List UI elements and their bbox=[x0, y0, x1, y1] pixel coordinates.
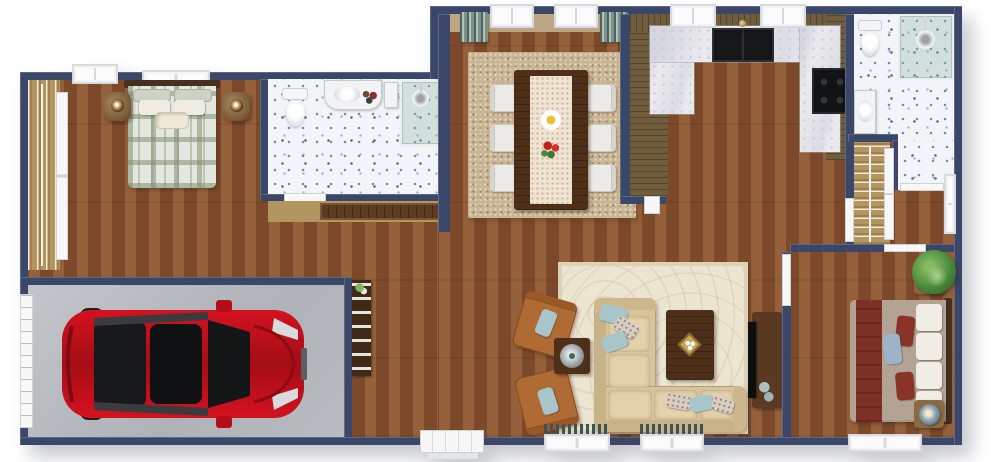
exterior-wall-step bbox=[430, 6, 438, 80]
bathroom2-sink bbox=[857, 100, 873, 122]
bed2-pillow-white-1 bbox=[916, 304, 942, 331]
tv-console-decor bbox=[758, 380, 776, 404]
garage-wall-top bbox=[20, 277, 352, 285]
toilet2-tank bbox=[858, 20, 882, 31]
dining-chair-right-3 bbox=[586, 164, 616, 192]
bed2-pillow-white-2 bbox=[916, 333, 942, 360]
front-door-step bbox=[428, 453, 478, 459]
dining-plate bbox=[541, 110, 561, 130]
bedroom2-door bbox=[782, 254, 791, 306]
bedroom2-hall-opening bbox=[884, 244, 926, 252]
shower2-head bbox=[916, 30, 935, 49]
bedroom2-plant bbox=[912, 250, 956, 294]
kitchen-stub-cap bbox=[644, 196, 660, 214]
garage-door bbox=[20, 294, 33, 428]
master-bed-cushion bbox=[155, 112, 189, 129]
sofa-back-left bbox=[594, 310, 606, 432]
main-bathroom-decor bbox=[362, 90, 378, 104]
bedroom2-window bbox=[848, 434, 922, 452]
bedroom2-lamp-bottom bbox=[919, 404, 940, 425]
wall-dining-left bbox=[438, 14, 450, 232]
car: Red hatchback car, top view bbox=[58, 296, 310, 432]
living-window-right bbox=[640, 434, 704, 452]
main-bathroom-sink bbox=[334, 86, 360, 103]
hall-east-door bbox=[845, 198, 854, 242]
toilet-tank bbox=[282, 88, 308, 100]
hall-bookshelf-plant bbox=[354, 282, 368, 296]
hall-closet-mat bbox=[320, 203, 442, 220]
front-door bbox=[420, 430, 484, 453]
sofa-cushion-3 bbox=[608, 390, 652, 420]
master-closet-rail bbox=[41, 84, 43, 266]
tv-screen bbox=[748, 322, 756, 398]
dining-window-left bbox=[490, 4, 534, 28]
sofa-cushion-2 bbox=[608, 354, 650, 388]
master-closet-doors bbox=[56, 92, 68, 260]
bed2-pillow-white-3 bbox=[916, 362, 942, 389]
nightstand-left-lamp bbox=[111, 99, 124, 112]
exterior-wall-bottom bbox=[20, 437, 962, 445]
bed2-maroon-runner bbox=[856, 300, 882, 422]
floor-plan-canvas: Red hatchback car, top view bbox=[0, 0, 1000, 462]
dining-chair-right-2 bbox=[586, 124, 616, 152]
dining-curtain-left bbox=[460, 12, 488, 42]
wall-dining-kitchen bbox=[620, 14, 630, 200]
walkin-closet-doors bbox=[884, 148, 894, 240]
wall-bedroom-bathroom bbox=[260, 79, 268, 201]
living-window-left bbox=[544, 434, 610, 452]
master-bedroom-window-left bbox=[72, 64, 118, 84]
main-shower-arm bbox=[420, 82, 422, 92]
kitchen-sink bbox=[712, 28, 774, 62]
main-bathroom-cabinet bbox=[384, 82, 398, 108]
living-lamp-finial bbox=[569, 353, 575, 359]
bed2-pillow-maroon-2 bbox=[895, 371, 915, 400]
bathroom2-door bbox=[900, 183, 944, 191]
garage-wall-right bbox=[344, 277, 352, 437]
dining-flowers bbox=[540, 138, 562, 160]
bathroom2-wall-bottom bbox=[848, 134, 898, 142]
nightstand-right-lamp bbox=[230, 99, 243, 112]
kitchen-window-right bbox=[760, 4, 806, 28]
kitchen-faucet bbox=[739, 20, 746, 27]
sofa-armrest-right bbox=[734, 386, 746, 432]
dining-chair-right-1 bbox=[586, 84, 616, 112]
bed2-pillow-blue bbox=[882, 333, 902, 365]
walkin-closet-rail bbox=[869, 146, 871, 242]
kitchen-window-left bbox=[670, 4, 716, 28]
east-wall-window bbox=[944, 174, 956, 234]
house-render: Red hatchback car, top view bbox=[0, 0, 1000, 462]
coffee-table-cups bbox=[684, 339, 696, 351]
main-shower-head bbox=[412, 90, 429, 107]
dining-window-right bbox=[554, 4, 598, 28]
shower2-arm bbox=[924, 16, 926, 31]
